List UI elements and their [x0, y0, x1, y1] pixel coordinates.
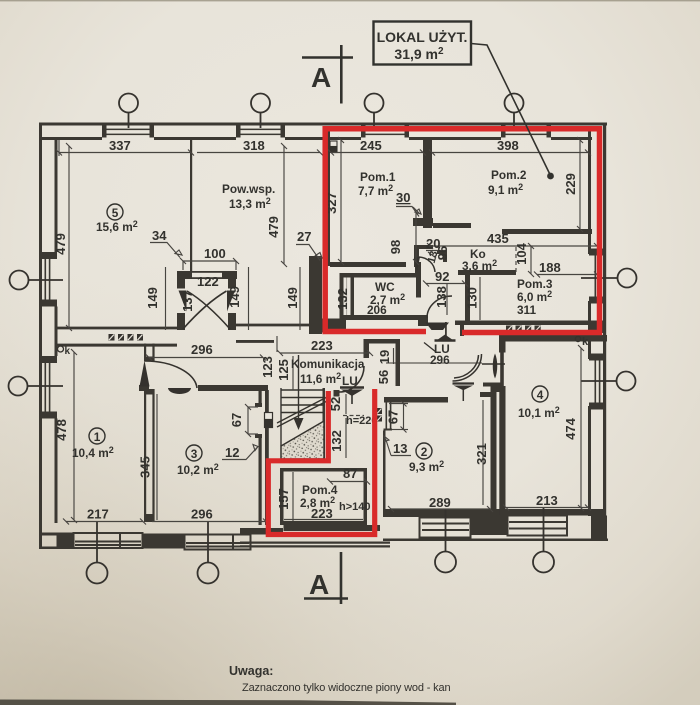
svg-text:15,6 m2: 15,6 m2 [96, 219, 138, 234]
svg-text:10,2 m2: 10,2 m2 [177, 462, 219, 477]
svg-text:56: 56 [376, 370, 391, 384]
svg-text:10,4 m2: 10,4 m2 [72, 445, 114, 460]
svg-text:217: 217 [87, 507, 109, 522]
svg-text:125: 125 [276, 359, 291, 381]
svg-text:3,6 m2: 3,6 m2 [462, 258, 497, 273]
svg-text:149: 149 [145, 287, 160, 309]
svg-text:LOKAL UŻYT.: LOKAL UŻYT. [377, 29, 468, 45]
svg-text:9,1 m2: 9,1 m2 [488, 182, 523, 197]
svg-text:345: 345 [138, 456, 153, 478]
svg-text:149: 149 [227, 286, 242, 308]
svg-text:123: 123 [260, 356, 275, 378]
svg-text:5: 5 [112, 206, 119, 220]
svg-text:337: 337 [109, 138, 131, 153]
svg-text:2,8 m2: 2,8 m2 [300, 495, 335, 510]
svg-text:223: 223 [311, 338, 333, 353]
svg-text:Pom.1: Pom.1 [360, 170, 396, 184]
svg-text:WC: WC [375, 280, 395, 294]
svg-text:Komunikacja: Komunikacja [291, 357, 365, 371]
svg-text:A: A [309, 569, 329, 600]
svg-text:12: 12 [225, 445, 239, 460]
svg-text:7,7 m2: 7,7 m2 [358, 183, 393, 198]
svg-text:188: 188 [539, 260, 561, 275]
svg-text:k: k [582, 336, 589, 348]
svg-text:479: 479 [53, 233, 68, 255]
svg-text:k: k [65, 346, 71, 357]
svg-text:130: 130 [465, 287, 480, 309]
svg-text:474: 474 [563, 417, 578, 439]
svg-text:100: 100 [204, 246, 226, 261]
svg-text:96: 96 [435, 246, 450, 260]
svg-text:122: 122 [197, 274, 219, 289]
svg-text:34: 34 [152, 228, 167, 243]
svg-text:296: 296 [430, 353, 450, 367]
svg-text:398: 398 [497, 138, 519, 153]
svg-text:1: 1 [94, 430, 101, 444]
svg-text:3: 3 [191, 447, 198, 461]
svg-text:478: 478 [54, 419, 69, 441]
svg-text:2: 2 [421, 445, 428, 459]
svg-text:30: 30 [396, 190, 410, 205]
svg-text:137: 137 [180, 290, 195, 312]
svg-text:11,6 m2: 11,6 m2 [300, 371, 341, 386]
svg-text:67: 67 [229, 413, 244, 427]
svg-text:435: 435 [487, 231, 509, 246]
svg-text:A: A [311, 62, 331, 93]
svg-text:321: 321 [474, 443, 489, 465]
svg-text:9,3 m2: 9,3 m2 [409, 459, 444, 474]
svg-text:229: 229 [563, 173, 578, 195]
svg-text:4: 4 [537, 388, 544, 402]
svg-text:Pow.wsp.: Pow.wsp. [222, 182, 275, 196]
svg-text:296: 296 [191, 342, 213, 357]
svg-text:289: 289 [429, 495, 451, 510]
svg-text:Pom.2: Pom.2 [491, 168, 527, 182]
svg-text:87: 87 [343, 466, 357, 481]
svg-text:10,1 m2: 10,1 m2 [518, 405, 560, 420]
svg-text:67: 67 [386, 410, 401, 424]
svg-text:Uwaga:: Uwaga: [229, 664, 273, 678]
svg-text:296: 296 [191, 507, 213, 522]
svg-text:27: 27 [297, 229, 311, 244]
svg-text:19: 19 [377, 350, 392, 364]
svg-text:31,9 m2: 31,9 m2 [394, 46, 444, 62]
svg-text:98: 98 [388, 240, 403, 254]
svg-text:318: 318 [243, 138, 265, 153]
svg-text:104: 104 [514, 242, 529, 264]
svg-text:138: 138 [434, 286, 449, 308]
svg-text:Zaznaczono tylko widoczne pion: Zaznaczono tylko widoczne piony wod - ka… [242, 682, 450, 694]
svg-text:311: 311 [517, 303, 536, 317]
svg-text:LU: LU [342, 374, 358, 388]
svg-text:6,0 m2: 6,0 m2 [517, 289, 552, 304]
svg-text:13,3 m2: 13,3 m2 [229, 196, 271, 211]
svg-text:132: 132 [329, 430, 344, 452]
svg-text:245: 245 [360, 138, 382, 153]
svg-text:213: 213 [536, 493, 558, 508]
svg-text:13: 13 [393, 441, 407, 456]
svg-text:206: 206 [367, 303, 387, 317]
svg-text:h>140: h>140 [339, 501, 371, 513]
svg-text:157: 157 [276, 488, 291, 510]
svg-text:149: 149 [285, 287, 300, 309]
svg-text:132: 132 [335, 288, 350, 310]
svg-text:479: 479 [266, 216, 281, 238]
svg-text:92: 92 [435, 269, 449, 284]
